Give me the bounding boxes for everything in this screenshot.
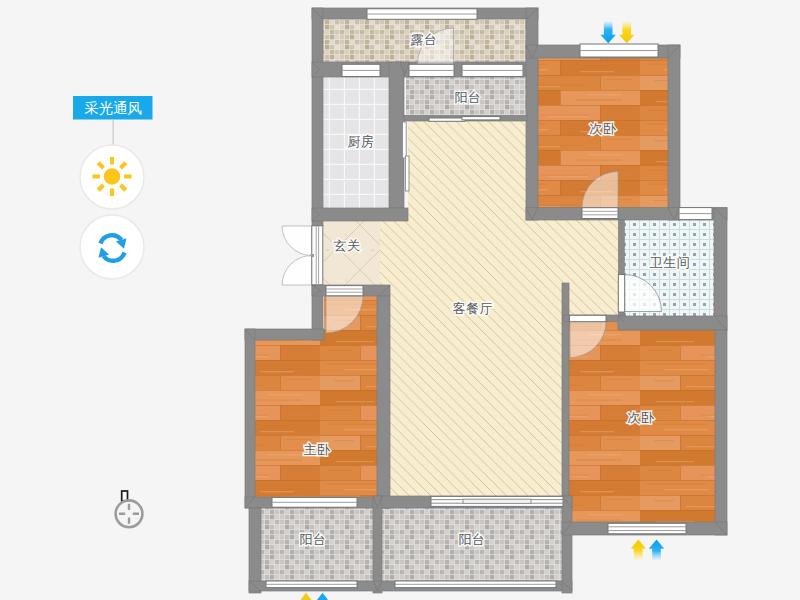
svg-text:玄关: 玄关	[334, 238, 361, 253]
svg-text:厨房: 厨房	[348, 134, 375, 149]
svg-text:客餐厅: 客餐厅	[453, 301, 494, 316]
svg-text:阳台: 阳台	[455, 90, 482, 105]
svg-text:次卧: 次卧	[590, 121, 618, 136]
svg-text:次卧: 次卧	[628, 410, 656, 425]
svg-text:主卧: 主卧	[304, 442, 332, 457]
svg-text:卫生间: 卫生间	[650, 255, 691, 270]
svg-text:露台: 露台	[411, 32, 438, 47]
svg-text:阳台: 阳台	[459, 532, 486, 547]
svg-text:采光通风: 采光通风	[84, 100, 142, 116]
svg-text:阳台: 阳台	[300, 532, 327, 547]
